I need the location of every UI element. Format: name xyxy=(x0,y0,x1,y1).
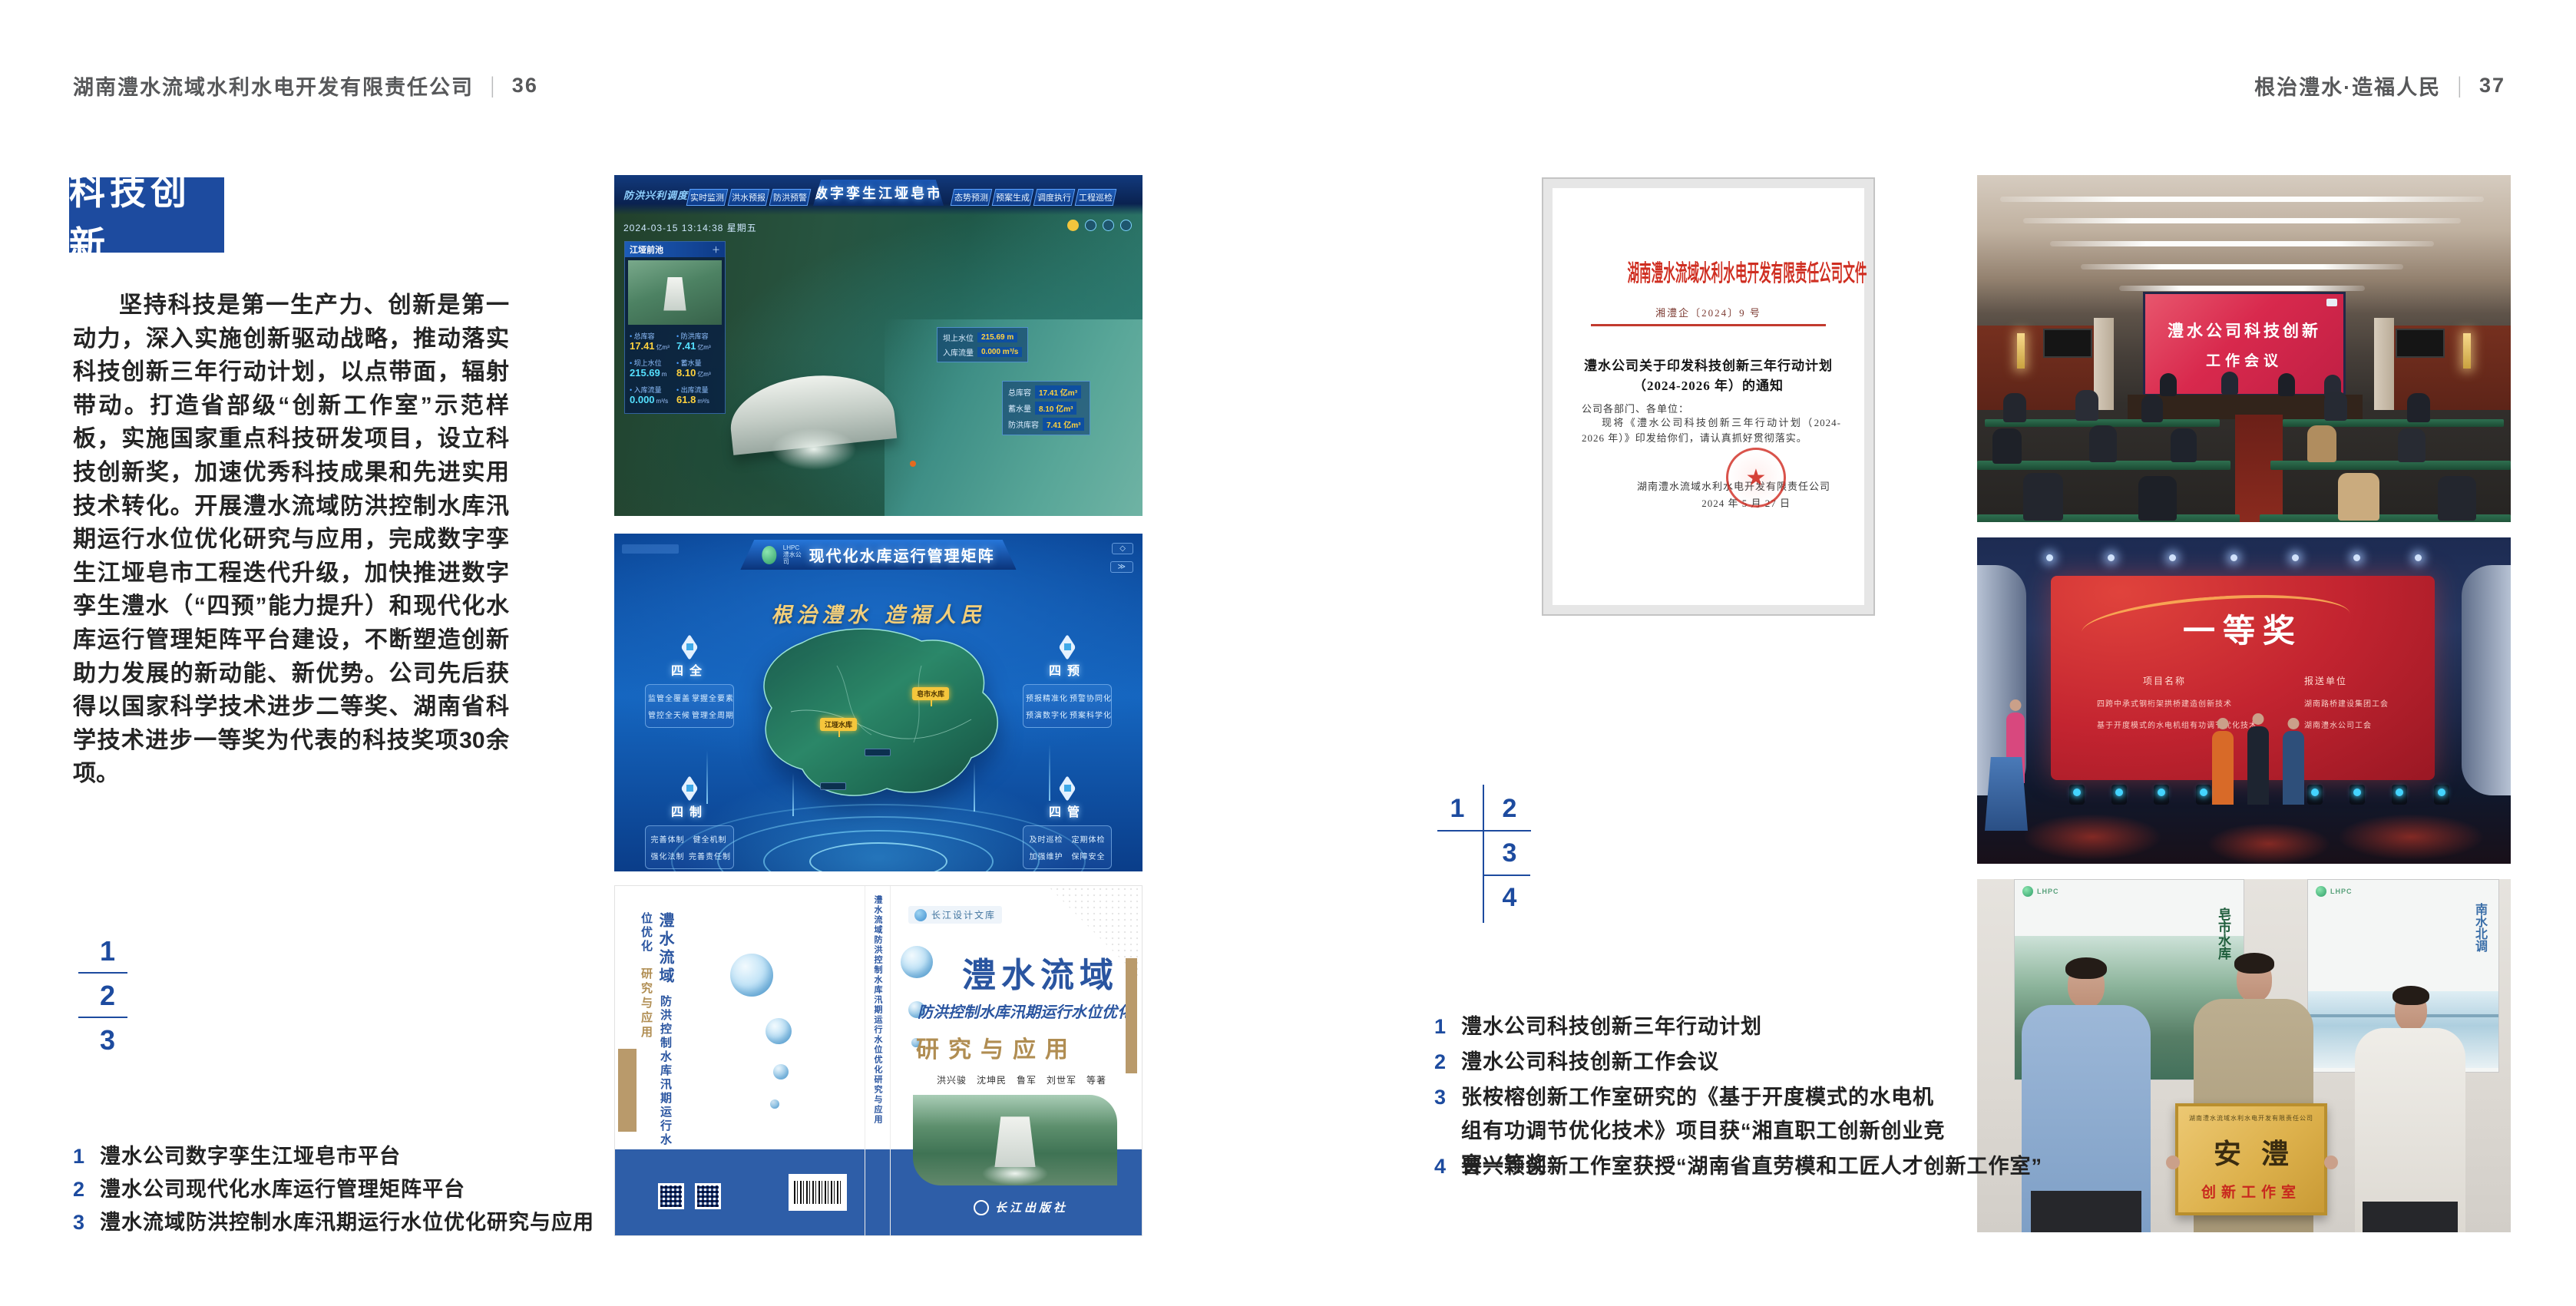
spine-title: 澧水流域防洪控制水库汛期运行水位优化研究与应用 xyxy=(871,895,884,1149)
stat-value: 7.41 xyxy=(676,340,696,352)
poster-logo: LHPC xyxy=(2022,886,2059,897)
document-title: 澧水公司关于印发科技创新三年行动计划 （2024-2026 年）的通知 xyxy=(1553,356,1864,396)
stat-cell: 坝上水位215.69m xyxy=(630,358,673,380)
basin-map: 皂市水库 江垭水库 xyxy=(729,620,1029,813)
tab-label: 洪水预报 xyxy=(732,191,766,203)
figure-matrix-platform: LHPC 澧水公司 现代化水库运行管理矩阵 ◇ ≫ 根治澧水 造福人民 皂市水库 xyxy=(614,534,1143,871)
tab-label: 调度执行 xyxy=(1037,191,1071,203)
person-head xyxy=(2395,991,2427,1031)
group-item: 预报精准化 xyxy=(1026,692,1068,703)
poster-right-calligraphy: 南水北调 xyxy=(2471,903,2489,952)
group-name: 四全 xyxy=(645,660,734,679)
tab-flood-forecast[interactable]: 洪水预报 xyxy=(728,189,770,206)
audience-person xyxy=(2307,425,2336,462)
worker-figure xyxy=(910,461,916,467)
cube-icon xyxy=(678,640,701,656)
ceiling-light xyxy=(2000,197,2484,202)
dam-spillway xyxy=(772,428,856,470)
capacity-popup: 总库容17.41 亿m³ 蓄水量8.10 亿m³ 防洪库容7.41 亿m³ xyxy=(1002,381,1090,435)
document-page: 湖南澧水流域水利水电开发有限责任公司文件 湘澧企〔2024〕9 号 澧水公司关于… xyxy=(1553,188,1864,605)
audience-person xyxy=(2407,393,2430,422)
divider: | xyxy=(2458,73,2462,99)
official-seal: ★ xyxy=(1726,448,1786,508)
plaque-title: 安澧 xyxy=(2178,1132,2324,1172)
index-divider xyxy=(78,972,127,974)
person-head xyxy=(2237,959,2272,1002)
light-pillar xyxy=(706,750,708,804)
award-title: 一等奖 xyxy=(2051,605,2435,652)
back-cover-title: 澧水流域 防洪控制水库汛期运行水位优化 研究与应用 xyxy=(638,912,676,1150)
caption-row: 2 澧水公司科技创新工作会议 xyxy=(1434,1045,1719,1079)
moving-light xyxy=(2069,785,2085,805)
group-item: 预演数字化 xyxy=(1026,709,1068,720)
tab-label: 防洪预警 xyxy=(773,191,807,203)
page-number-left: 36 xyxy=(512,74,538,98)
stage-spotlight xyxy=(2108,554,2115,561)
brochure-spread: 湖南澧水流域水利水电开发有限责任公司 | 36 根治澧水·造福人民 | 37 科… xyxy=(0,0,2576,1306)
front-title-main: 澧水流域 xyxy=(962,947,1119,997)
back-title-3: 研究与应用 xyxy=(640,967,653,1040)
project-row: 基于开度模式的水电机组有功调节优化技术 xyxy=(2097,719,2257,730)
figure-index-1: 1 xyxy=(86,935,129,967)
plus-icon[interactable]: ＋ xyxy=(712,243,720,256)
tab-label: 工程巡检 xyxy=(1079,191,1113,203)
stage-spotlight xyxy=(2292,554,2299,561)
audience-person xyxy=(2003,393,2026,422)
publisher-name: 长江出版社 xyxy=(995,1199,1068,1215)
stat-unit: m³/s xyxy=(697,398,709,405)
moving-light xyxy=(2111,785,2127,805)
stage-spotlight xyxy=(2046,554,2053,561)
stat-cell: 入库流量0.000m³/s xyxy=(630,385,673,407)
caption-number: 1 xyxy=(73,1139,84,1173)
caption-row: 3 澧水流域防洪控制水库汛期运行水位优化研究与应用 xyxy=(73,1205,594,1239)
figure-workstation-photo: LHPC 皂市水库 LHPC 南水北调 湖南澧水流域水利水电开发有限责任公司 安… xyxy=(1977,879,2511,1232)
light-pillar xyxy=(792,773,794,816)
stage-side-panel xyxy=(2462,565,2511,795)
page-number-right: 37 xyxy=(2479,74,2505,98)
hud-icon-group xyxy=(1067,220,1132,231)
stat-value: 61.8 xyxy=(676,394,696,405)
stat-value: 0.000 xyxy=(630,394,655,405)
presenter-suit xyxy=(2247,726,2269,805)
stat-value: 215.69 xyxy=(630,367,660,379)
caption-row: 1 澧水公司数字孪生江垭皂市平台 xyxy=(73,1139,401,1173)
audience-table xyxy=(1977,514,2240,522)
qr-code xyxy=(695,1183,721,1209)
authors-line: 洪兴骏 沈坤民 鲁军 刘世军 等著 xyxy=(937,1073,1106,1086)
audience-person xyxy=(2338,473,2379,521)
light-pillar xyxy=(1049,744,1050,801)
group-panel: 预报精准化 预警协同化 预演数字化 预案科学化 xyxy=(1023,684,1112,728)
figure-meeting-photo: 澧水公司科技创新 工作会议 xyxy=(1977,175,2511,522)
wall-column xyxy=(2374,318,2394,410)
wall-tv xyxy=(2396,329,2445,358)
menu-icon[interactable]: ≫ xyxy=(1110,561,1133,573)
caption-number: 2 xyxy=(73,1172,84,1206)
awardee-blue xyxy=(2283,731,2304,805)
ceiling-light xyxy=(2023,218,2461,223)
panel-title: 江垭前池 xyxy=(630,243,663,256)
logo-line: LHPC xyxy=(2330,888,2353,895)
document-title-line: 澧水公司关于印发科技创新三年行动计划 xyxy=(1584,359,1833,373)
moving-light xyxy=(2392,785,2407,805)
audience-person xyxy=(2398,428,2426,462)
hand xyxy=(2166,1156,2180,1169)
group-name: 四管 xyxy=(1023,802,1112,820)
figure-index-4: 4 xyxy=(1488,883,1531,913)
dashboard-timestamp: 2024-03-15 13:14:38 星期五 xyxy=(623,221,757,234)
stat-unit: m xyxy=(662,371,667,378)
matrix-header: LHPC 澧水公司 现代化水库运行管理矩阵 xyxy=(740,540,1016,570)
map-tag-jiangya[interactable]: 江垭水库 xyxy=(820,718,857,731)
logo-line: LHPC xyxy=(2037,888,2059,895)
caption-text: 曾兴颖创新工作室获授“湖南省直劳模和工匠人才创新工作室” xyxy=(1461,1149,2042,1183)
stat-unit: 亿m³ xyxy=(697,371,710,378)
caption-row: 2 澧水公司现代化水库运行管理矩阵平台 xyxy=(73,1172,465,1206)
hand xyxy=(2324,1156,2338,1169)
layers-icon[interactable] xyxy=(1103,220,1114,231)
logo-line: LHPC xyxy=(783,544,799,551)
person-pants xyxy=(2363,1202,2458,1232)
tan-bar xyxy=(1126,958,1137,1073)
ceiling-light xyxy=(2081,264,2403,269)
company-name: 湖南澧水流域水利水电开发有限责任公司 xyxy=(73,71,474,101)
cube-icon xyxy=(1056,640,1079,656)
caption-text: 澧水公司现代化水库运行管理矩阵平台 xyxy=(100,1172,465,1206)
caption-number: 3 xyxy=(73,1205,84,1239)
publisher: 长江出版社 xyxy=(974,1199,1068,1215)
popup-value: 7.41 亿m³ xyxy=(1043,418,1084,431)
unit-row: 湖南澧水公司工会 xyxy=(2304,719,2372,730)
screen-title-line1: 澧水公司科技创新 xyxy=(2168,319,2321,342)
group-item: 管理全周期 xyxy=(692,709,734,720)
caption-number: 2 xyxy=(1434,1045,1446,1079)
person-head xyxy=(2068,964,2105,1008)
plaque-header: 湖南澧水流域水利水电开发有限责任公司 xyxy=(2178,1114,2324,1122)
audience-person xyxy=(2023,473,2063,521)
tab-plan-generate[interactable]: 预案生成 xyxy=(992,189,1034,206)
index-divider xyxy=(1483,785,1484,923)
lhpc-logo-icon xyxy=(2316,886,2326,897)
group-name: 四预 xyxy=(1023,660,1112,679)
lectern xyxy=(1985,757,2028,831)
group-name: 四制 xyxy=(645,802,734,820)
water-level-popup: 坝上水位215.69 m 入库流量0.000 m³/s xyxy=(937,327,1028,362)
front-title-sub: 防洪控制水库汛期运行水位优化 xyxy=(918,1000,1133,1022)
matrix-group-siquan: 四全 监管全覆盖 掌握全要素 管控全天候 管理全周期 xyxy=(645,640,734,728)
tab-dispatch-execute[interactable]: 调度执行 xyxy=(1033,189,1076,206)
group-item: 管控全天候 xyxy=(648,709,690,720)
user-icon[interactable] xyxy=(1120,220,1132,231)
column-label: 项目名称 xyxy=(2143,674,2186,687)
tab-flood-warning[interactable]: 防洪预警 xyxy=(769,189,812,206)
figure-digital-twin-platform: 防洪兴利调度 实时监测 洪水预报 防洪预警 数字孪生江垭皂市 态势预测 预案生成… xyxy=(614,175,1143,516)
caption-text: 澧水公司科技创新三年行动计划 xyxy=(1461,1010,1762,1043)
poster-logo: LHPC xyxy=(2316,886,2353,897)
water-droplet xyxy=(901,946,933,978)
wall-tv xyxy=(2043,329,2092,358)
shield-icon xyxy=(1056,781,1079,798)
panelist-silhouette xyxy=(2278,373,2295,396)
popup-value: 17.41 亿m³ xyxy=(1035,385,1081,398)
figure-index-3: 3 xyxy=(86,1024,129,1056)
matrix-timestamp xyxy=(622,544,679,554)
floor-glow xyxy=(2338,814,2484,860)
group-item: 掌握全要素 xyxy=(692,692,734,703)
slogan: 根治澧水·造福人民 xyxy=(2254,71,2441,101)
back-title-1: 澧水流域 xyxy=(656,912,673,986)
screen-logo-icon xyxy=(2326,299,2337,306)
stat-cell: 总库容17.41亿m³ xyxy=(630,331,673,353)
camera-icon[interactable] xyxy=(1085,220,1096,231)
floor-glow xyxy=(2207,823,2330,864)
matrix-title: 现代化水库运行管理矩阵 xyxy=(809,544,995,566)
dashboard-corner-label: 防洪兴利调度 xyxy=(623,187,688,202)
map-tag-zaoshi[interactable]: 皂市水库 xyxy=(912,687,949,700)
caption-row: 1 澧水公司科技创新三年行动计划 xyxy=(1434,1010,1762,1043)
series-name: 长江设计文库 xyxy=(931,908,996,921)
tab-label: 态势预测 xyxy=(954,191,988,203)
tab-label: 实时监测 xyxy=(690,191,724,203)
stat-unit: 亿m³ xyxy=(656,344,670,351)
figure-award-photo: 一等奖 项目名称 报送单位 四跨中承式钢桁架拱桥建造创新技术 基于开度模式的水电… xyxy=(1977,537,2511,864)
stage-spotlight xyxy=(2353,554,2360,561)
audience-person xyxy=(2075,390,2098,421)
figure-book-cover: 澧水流域防洪控制水库汛期运行水位优化研究与应用 澧水流域 防洪控制水库汛期运行水… xyxy=(614,885,1143,1236)
moving-light xyxy=(2196,785,2211,805)
document-number: 湘澧企〔2024〕9 号 xyxy=(1553,305,1864,319)
popup-label: 总库容 xyxy=(1008,386,1031,398)
workstation-plaque: 湖南澧水流域水利水电开发有限责任公司 安澧 创新工作室 xyxy=(2175,1103,2327,1215)
section-title: 科技创新 xyxy=(69,177,224,253)
stat-value: 8.10 xyxy=(676,367,696,379)
logo-line: 澧水公司 xyxy=(783,551,802,565)
audience-person xyxy=(2141,395,2163,422)
moving-light xyxy=(2307,785,2323,805)
moving-light xyxy=(2434,785,2449,805)
body-paragraph: 坚持科技是第一生产力、创新是第一动力，深入实施创新驱动战略，推动落实科技创新三年… xyxy=(73,289,509,791)
water-droplet xyxy=(773,1064,789,1080)
close-icon[interactable]: ◇ xyxy=(1112,543,1133,554)
group-panel: 监管全覆盖 掌握全要素 管控全天候 管理全周期 xyxy=(645,684,734,728)
caption-row: 4 曾兴颖创新工作室获授“湖南省直劳模和工匠人才创新工作室” xyxy=(1434,1149,2042,1183)
stat-cell: 蓄水量8.10亿m³ xyxy=(676,358,720,380)
figure-index-1: 1 xyxy=(1436,794,1479,824)
audience-person xyxy=(2089,425,2117,462)
unit-row: 湖南路桥建设集团工会 xyxy=(2304,697,2389,709)
tab-realtime-monitor[interactable]: 实时监测 xyxy=(686,189,729,206)
divider: | xyxy=(491,73,495,99)
red-rule xyxy=(1591,324,1826,326)
panelist-silhouette xyxy=(2221,372,2238,395)
building-icon xyxy=(678,781,701,798)
popup-value: 8.10 亿m³ xyxy=(1035,402,1076,415)
tan-block xyxy=(618,1049,637,1132)
tab-project-inspect[interactable]: 工程巡检 xyxy=(1075,189,1117,206)
stat-cell: 出库流量61.8m³/s xyxy=(676,385,720,407)
popup-label: 防洪库容 xyxy=(1008,418,1039,430)
publisher-logo-icon xyxy=(974,1200,989,1215)
popup-label: 蓄水量 xyxy=(1008,402,1031,414)
group-item: 预警协同化 xyxy=(1070,692,1112,703)
document-title-line: （2024-2026 年）的通知 xyxy=(1633,379,1784,393)
water-droplet xyxy=(730,954,773,997)
basin-map-svg xyxy=(729,620,1029,813)
wall-lamp xyxy=(2017,333,2025,369)
wall-lamp xyxy=(2463,333,2471,369)
floor-glow xyxy=(2023,814,2161,860)
series-badge: 长江设计文库 xyxy=(908,906,1002,924)
popup-value: 215.69 m xyxy=(977,332,1017,342)
stat-unit: m³/s xyxy=(656,398,669,405)
popup-label: 入库流量 xyxy=(943,346,974,358)
document-body: 现将《澧水公司科技创新三年行动计划（2024-2026 年）》印发给你们，请认真… xyxy=(1582,415,1841,445)
audience-person xyxy=(2171,428,2197,462)
awardee-orange xyxy=(2212,731,2234,805)
index-divider xyxy=(1483,875,1530,876)
moving-light xyxy=(2154,785,2169,805)
stage-spotlight xyxy=(2169,554,2176,561)
station-panel: 江垭前池 ＋ 总库容17.41亿m³ 防洪库容7.41亿m³ 坝上水位215.6… xyxy=(624,241,726,414)
document-header: 湖南澧水流域水利水电开发有限责任公司文件 xyxy=(1627,254,1789,288)
audience-person xyxy=(2324,392,2347,421)
caption-number: 4 xyxy=(1434,1149,1446,1183)
project-row: 四跨中承式钢桁架拱桥建造创新技术 xyxy=(2097,697,2232,709)
ceiling-light xyxy=(2050,241,2434,246)
light-pillar xyxy=(974,762,975,812)
alert-icon[interactable] xyxy=(1067,220,1079,231)
caption-number: 3 xyxy=(1434,1080,1446,1114)
tab-label: 预案生成 xyxy=(996,191,1030,203)
moving-light xyxy=(2349,785,2365,805)
figure-index-2: 2 xyxy=(1488,794,1531,824)
figure-index-2: 2 xyxy=(86,980,129,1012)
caption-text: 澧水公司科技创新工作会议 xyxy=(1461,1045,1719,1079)
screen-title-line2: 工作会议 xyxy=(2206,349,2283,370)
dam-thumbnail xyxy=(628,260,722,325)
person-pants xyxy=(2031,1191,2141,1232)
dashboard-title: 数字孪生江垭皂市 xyxy=(813,180,944,206)
caption-text: 澧水流域防洪控制水库汛期运行水位优化研究与应用 xyxy=(100,1205,594,1239)
audience-table xyxy=(2270,461,2511,470)
caption-text: 澧水公司数字孪生江垭皂市平台 xyxy=(100,1139,401,1173)
matrix-group-siyu: 四预 预报精准化 预警协同化 预演数字化 预案科学化 xyxy=(1023,640,1112,728)
ceiling-light xyxy=(2119,286,2365,291)
dam-photo xyxy=(913,1095,1117,1185)
front-title-tail: 研究与应用 xyxy=(916,1030,1077,1064)
tab-situation-forecast[interactable]: 态势预测 xyxy=(951,189,993,206)
stage-spotlight xyxy=(2230,554,2237,561)
seal-star-icon: ★ xyxy=(1746,465,1767,491)
group-item: 预案科学化 xyxy=(1070,709,1112,720)
lhpc-logo-text: LHPC 澧水公司 xyxy=(783,544,803,565)
popup-value: 0.000 m³/s xyxy=(977,347,1022,357)
plaque-subtitle: 创新工作室 xyxy=(2178,1181,2324,1202)
index-divider xyxy=(1437,830,1531,832)
running-head-right: 根治澧水·造福人民 | 37 xyxy=(2254,71,2505,101)
station-stats: 总库容17.41亿m³ 防洪库容7.41亿m³ 坝上水位215.69m 蓄水量8… xyxy=(625,328,725,413)
running-head-left: 湖南澧水流域水利水电开发有限责任公司 | 36 xyxy=(73,71,538,101)
caption-number: 1 xyxy=(1434,1010,1446,1043)
audience-person xyxy=(2138,476,2177,521)
audience-person xyxy=(1992,428,2022,464)
panelist-silhouette xyxy=(2160,373,2177,396)
qr-code xyxy=(658,1183,684,1209)
led-screen: 一等奖 项目名称 报送单位 四跨中承式钢桁架拱桥建造创新技术 基于开度模式的水电… xyxy=(2051,576,2435,780)
poster-left-calligraphy: 皂市水库 xyxy=(2214,908,2233,960)
lhpc-logo-icon xyxy=(762,546,776,564)
series-logo-icon xyxy=(914,909,927,921)
document-salutation: 公司各部门、各单位： xyxy=(1582,401,1689,415)
group-item: 监管全覆盖 xyxy=(648,692,690,703)
stage-spotlight xyxy=(2415,554,2422,561)
stat-unit: 亿m³ xyxy=(697,344,710,351)
column-label: 报送单位 xyxy=(2304,674,2347,687)
index-divider xyxy=(78,1017,127,1018)
barcode xyxy=(789,1174,847,1211)
stat-value: 17.41 xyxy=(630,340,655,352)
figure-official-document: 湖南澧水流域水利水电开发有限责任公司文件 湘澧企〔2024〕9 号 澧水公司关于… xyxy=(1543,179,1873,614)
map-station-dot xyxy=(865,749,891,756)
popup-label: 坝上水位 xyxy=(943,332,974,343)
lhpc-logo-icon xyxy=(2022,886,2033,897)
stat-cell: 防洪库容7.41亿m³ xyxy=(676,331,720,353)
water-droplet xyxy=(770,1099,779,1109)
water-droplet xyxy=(766,1018,792,1044)
map-station-dot xyxy=(820,782,846,790)
figure-index-3: 3 xyxy=(1488,838,1531,868)
audience-person xyxy=(2438,476,2476,521)
